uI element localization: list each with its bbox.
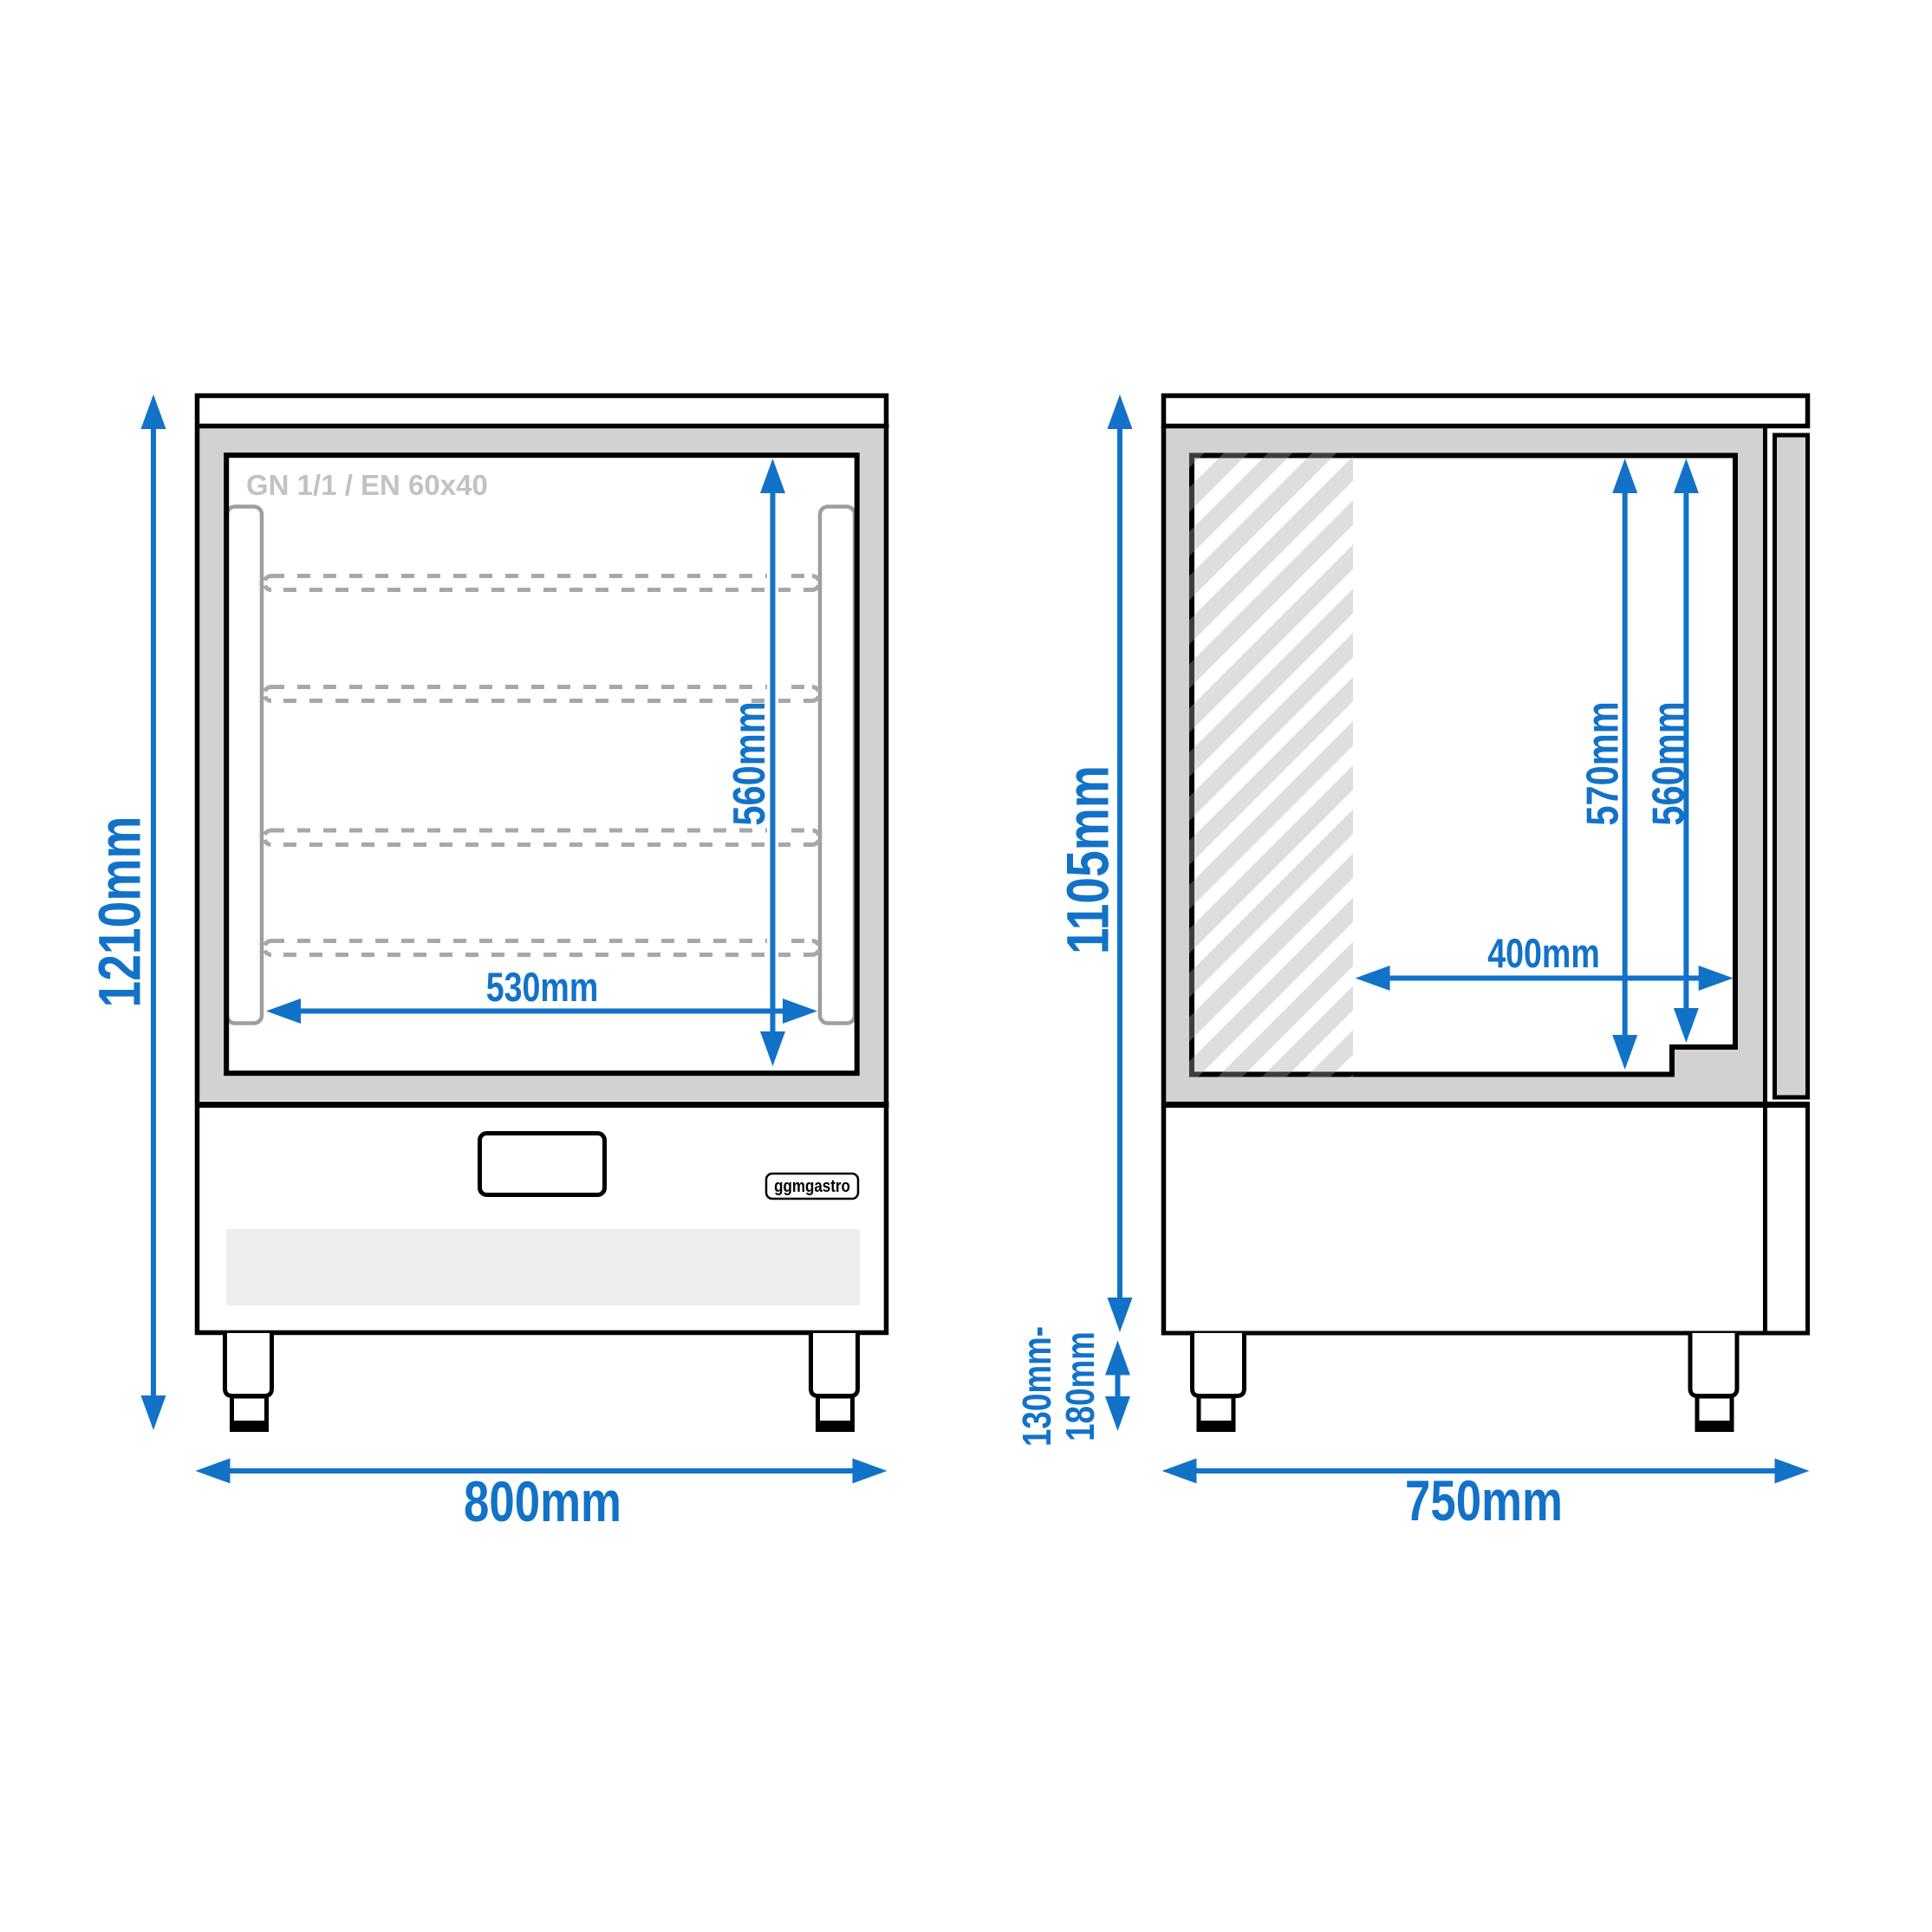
svg-text:400mm: 400mm (1487, 931, 1600, 977)
svg-text:1210mm: 1210mm (87, 816, 153, 1008)
svg-text:180mm: 180mm (1057, 1331, 1103, 1441)
svg-text:GN 1/1 / EN 60x40: GN 1/1 / EN 60x40 (246, 469, 488, 501)
svg-text:560mm: 560mm (1643, 701, 1694, 825)
svg-text:570mm: 570mm (1577, 701, 1628, 825)
svg-text:750mm: 750mm (1405, 1468, 1563, 1532)
svg-text:ggmgastro: ggmgastro (774, 1176, 850, 1196)
svg-text:130mm-: 130mm- (1014, 1326, 1059, 1447)
svg-text:530mm: 530mm (486, 965, 599, 1011)
svg-text:800mm: 800mm (464, 1469, 621, 1533)
svg-text:1105mm: 1105mm (1055, 765, 1122, 954)
svg-text:560mm: 560mm (724, 701, 775, 825)
